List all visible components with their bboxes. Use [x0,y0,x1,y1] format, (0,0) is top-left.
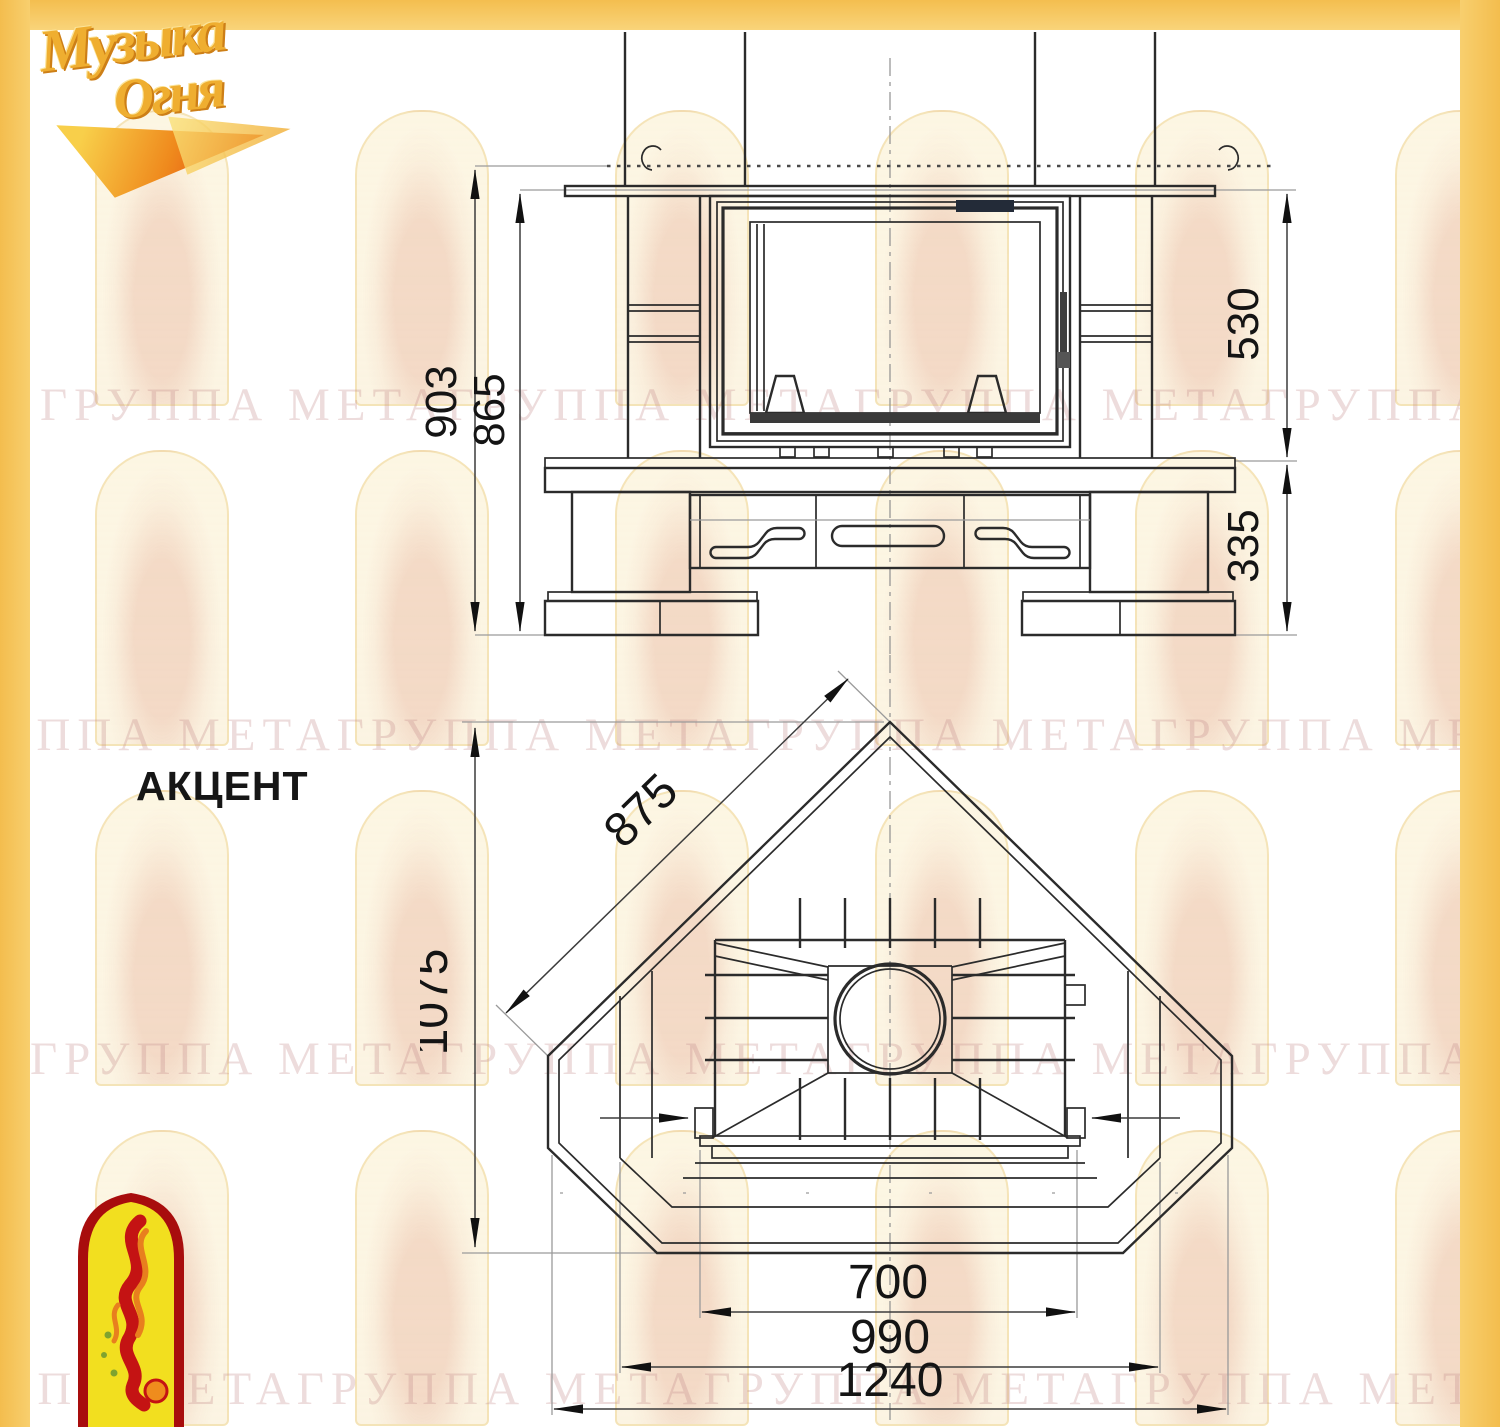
dim-label-700: 700 [848,1256,928,1309]
grille-slot-right [975,528,1069,558]
fireplace-dimension-sheet: ГРУППА МЕТАГРУППА МЕТАГРУППА МЕТАГРУППА … [0,0,1500,1427]
dim-label-903: 903 [420,365,466,438]
dim-label-875: 875 [594,764,688,858]
dim-label-1075: 1075 [420,949,458,1056]
dim-label-530: 530 [1219,287,1268,360]
plan-firebox [600,898,1180,1158]
grille-slot-center [832,526,944,546]
watermark-arch [95,450,229,746]
grille-slot-left [711,528,805,558]
front-extension-lines [475,166,1297,635]
brick-pillar-left [572,492,690,592]
plan-view-drawing: 875 1075 700 990 1240 [420,650,1480,1427]
meta-arch-emblem [78,1185,184,1427]
dim-label-1240: 1240 [837,1354,944,1407]
frame-strip-right [1460,0,1500,1427]
sun-icon [145,1380,167,1402]
dim-label-335: 335 [1219,509,1268,582]
front-elevation-drawing: 903 865 530 335 [420,25,1320,670]
muzyka-ognya-logo: Музыка Огня [5,0,307,216]
frame-strip-left [0,0,30,1427]
front-dimensions: 903 865 530 335 [420,170,1287,631]
logo-text-line2: Огня [110,56,226,133]
section-fold-line [607,146,1273,170]
door-feet [780,447,992,457]
brand-plate [956,200,1014,212]
dim-label-865: 865 [465,373,514,446]
firebox-side-nub [1065,985,1085,1005]
andiron-right [968,376,1006,413]
model-name-title: АКЦЕНТ [136,763,309,810]
brick-pillar-right [1090,492,1208,592]
andiron-left [766,376,804,413]
